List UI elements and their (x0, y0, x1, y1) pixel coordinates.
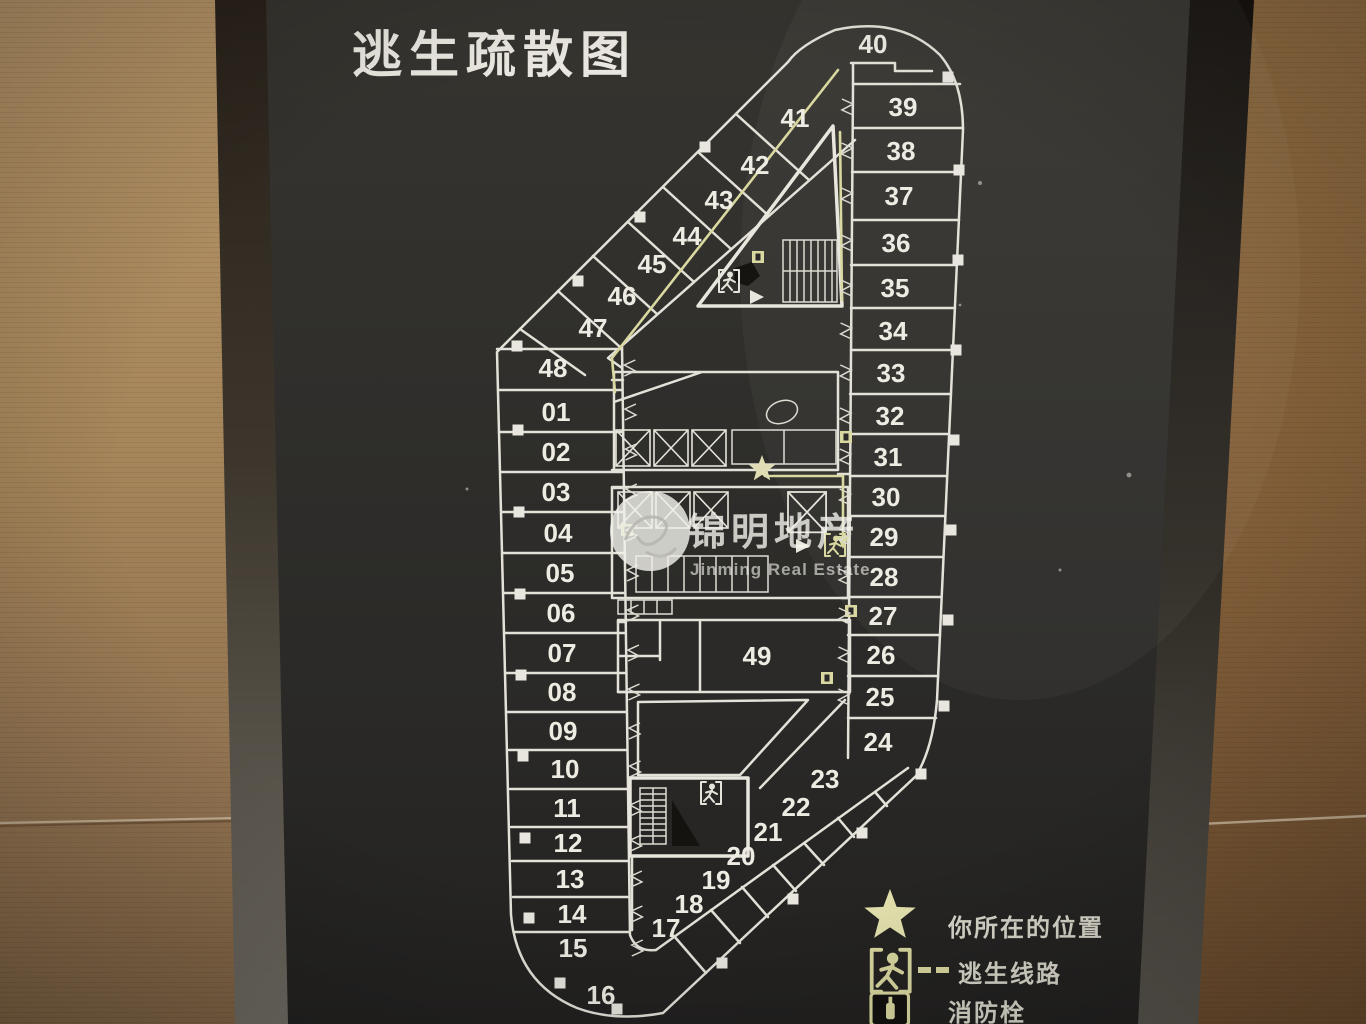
evacuation-sign-svg: 逃生疏散图 (0, 0, 1366, 1024)
photo-vignette (0, 0, 1366, 1024)
photo-evacuation-sign: 逃生疏散图 (0, 0, 1366, 1024)
